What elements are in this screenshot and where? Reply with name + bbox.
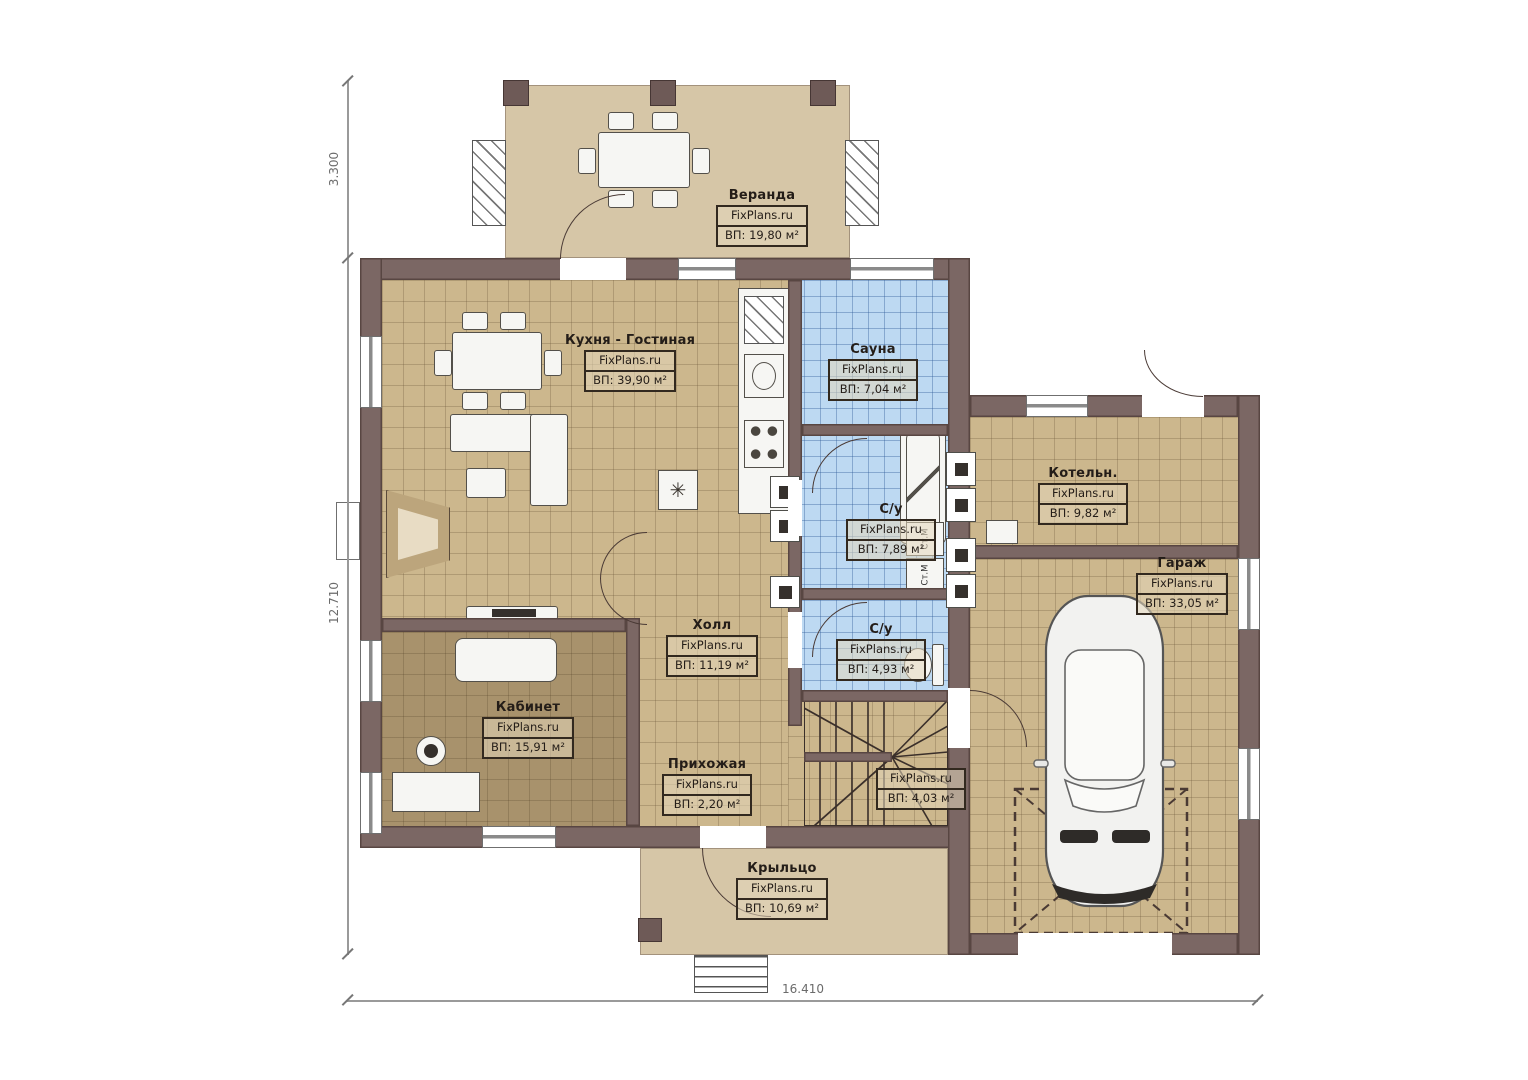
tv: [492, 609, 536, 617]
room-label-porch: Крыльцо FixPlans.ru ВП: 10,69 м²: [736, 861, 828, 920]
vent-symbol: ✳: [670, 478, 687, 502]
porch-steps: [694, 955, 768, 993]
room-area: ВП: 4,03 м²: [878, 790, 964, 808]
wall-segment: [802, 690, 948, 702]
chair: [500, 392, 526, 410]
room-label-garage: Гараж FixPlans.ru ВП: 33,05 м²: [1136, 556, 1228, 615]
veranda-side-steps: [472, 140, 506, 226]
room-name: Котельн.: [1048, 466, 1117, 481]
room-label-stairs: FixPlans.ru ВП: 4,03 м²: [876, 768, 966, 810]
chair: [608, 112, 634, 130]
room-area: ВП: 39,90 м²: [586, 372, 674, 390]
room-name: Кабинет: [496, 700, 560, 715]
toilet-tank: [932, 644, 944, 686]
room-label-bathroom-1: С/у FixPlans.ru ВП: 7,89 м²: [846, 502, 936, 561]
duct-shaft: [946, 488, 976, 522]
wall-segment: [626, 618, 640, 826]
window: [1026, 395, 1088, 417]
window: [1238, 558, 1260, 630]
watermark: FixPlans.ru: [586, 352, 674, 372]
wall-segment: [802, 588, 948, 600]
wall-segment: [382, 618, 626, 632]
garage-door-opening: [1018, 933, 1172, 955]
door-arc: [1144, 350, 1203, 397]
watermark: FixPlans.ru: [718, 207, 806, 227]
window: [360, 640, 382, 702]
watermark: FixPlans.ru: [738, 880, 826, 900]
window: [678, 258, 736, 280]
room-name: Прихожая: [668, 757, 746, 772]
room-name: Холл: [693, 618, 732, 633]
room-area: ВП: 7,04 м²: [830, 381, 916, 399]
car-top-view: [1032, 592, 1177, 910]
office-sofa: [455, 638, 557, 682]
dimension-line-vertical: [347, 80, 349, 955]
duct-shaft: [946, 574, 976, 608]
duct-shaft: [770, 576, 800, 608]
room-area: ВП: 4,93 м²: [838, 661, 924, 679]
window: [360, 336, 382, 408]
chair: [578, 148, 596, 174]
watermark: FixPlans.ru: [668, 637, 756, 657]
chair: [652, 190, 678, 208]
desk: [392, 772, 480, 812]
veranda-table: [598, 132, 690, 188]
room-label-veranda: Веранда FixPlans.ru ВП: 19,80 м²: [716, 188, 808, 247]
watermark: FixPlans.ru: [848, 521, 934, 541]
room-name: Веранда: [729, 188, 795, 203]
watermark: FixPlans.ru: [830, 361, 916, 381]
room-label-hall: Холл FixPlans.ru ВП: 11,19 м²: [666, 618, 758, 677]
room-name: Крыльцо: [747, 861, 816, 876]
watermark: FixPlans.ru: [838, 641, 924, 661]
dimension-line-horizontal: [347, 1000, 1258, 1002]
room-name: Гараж: [1157, 556, 1206, 571]
dimension-total-width: 16.410: [758, 982, 848, 996]
stove: [744, 420, 784, 468]
room-name: С/у: [879, 502, 902, 517]
dimension-veranda-depth: 3.300: [327, 129, 341, 209]
duct-shaft: [946, 538, 976, 572]
room-name: Сауна: [850, 342, 896, 357]
dining-table: [452, 332, 542, 390]
door-opening: [788, 480, 802, 536]
wall-segment: [802, 424, 948, 436]
watermark: FixPlans.ru: [1138, 575, 1226, 595]
coffee-table: [466, 468, 506, 498]
window: [482, 826, 556, 848]
door-opening: [788, 612, 802, 668]
room-area: ВП: 7,89 м²: [848, 541, 934, 559]
dimension-house-depth: 12.710: [327, 563, 341, 643]
chair: [500, 312, 526, 330]
chair: [692, 148, 710, 174]
room-name: Кухня - Гостиная: [565, 333, 695, 348]
boiler-unit: [986, 520, 1018, 544]
sink-bowl: [752, 362, 776, 390]
room-area: ВП: 33,05 м²: [1138, 595, 1226, 613]
door-opening: [560, 258, 626, 280]
door-opening: [700, 826, 766, 848]
chair: [544, 350, 562, 376]
door-opening: [1142, 395, 1204, 417]
kitchen-appliance: [744, 296, 784, 344]
veranda-post: [810, 80, 836, 106]
wall-segment: [804, 752, 892, 762]
room-label-entry: Прихожая FixPlans.ru ВП: 2,20 м²: [662, 757, 752, 816]
window: [850, 258, 934, 280]
door-opening: [948, 688, 970, 748]
room-name: С/у: [869, 622, 892, 637]
chair: [462, 312, 488, 330]
wall-segment: [360, 826, 970, 848]
room-label-sauna: Сауна FixPlans.ru ВП: 7,04 м²: [828, 342, 918, 401]
vent-icon: ✳: [658, 470, 698, 510]
porch-post: [638, 918, 662, 942]
watermark: FixPlans.ru: [664, 776, 750, 796]
room-area: ВП: 15,91 м²: [484, 739, 572, 757]
watermark: FixPlans.ru: [1040, 485, 1126, 505]
room-area: ВП: 9,82 м²: [1040, 505, 1126, 523]
room-label-bathroom-2: С/у FixPlans.ru ВП: 4,93 м²: [836, 622, 926, 681]
sofa-chaise: [530, 414, 568, 506]
room-area: ВП: 19,80 м²: [718, 227, 806, 245]
floor-plan-canvas: ✳ Ст.М Ст.М: [0, 0, 1528, 1080]
desk-chair-seat: [424, 744, 438, 758]
kitchen-sink: [744, 354, 784, 398]
watermark: FixPlans.ru: [484, 719, 572, 739]
room-area: ВП: 2,20 м²: [664, 796, 750, 814]
room-label-office: Кабинет FixPlans.ru ВП: 15,91 м²: [482, 700, 574, 759]
washing-machine: Ст.М: [906, 558, 944, 592]
room-label-boiler: Котельн. FixPlans.ru ВП: 9,82 м²: [1038, 466, 1128, 525]
window: [360, 772, 382, 834]
room-area: ВП: 10,69 м²: [738, 900, 826, 918]
veranda-post: [503, 80, 529, 106]
window: [1238, 748, 1260, 820]
chair: [434, 350, 452, 376]
chair: [652, 112, 678, 130]
washing-machine-label: Ст.М: [920, 565, 930, 586]
watermark: FixPlans.ru: [878, 770, 964, 790]
wall-segment: [1238, 395, 1260, 955]
veranda-post: [650, 80, 676, 106]
chair: [462, 392, 488, 410]
room-area: ВП: 11,19 м²: [668, 657, 756, 675]
duct-shaft: [946, 452, 976, 486]
veranda-side-steps: [845, 140, 879, 226]
room-label-kitchen-living: Кухня - Гостиная FixPlans.ru ВП: 39,90 м…: [565, 333, 695, 392]
